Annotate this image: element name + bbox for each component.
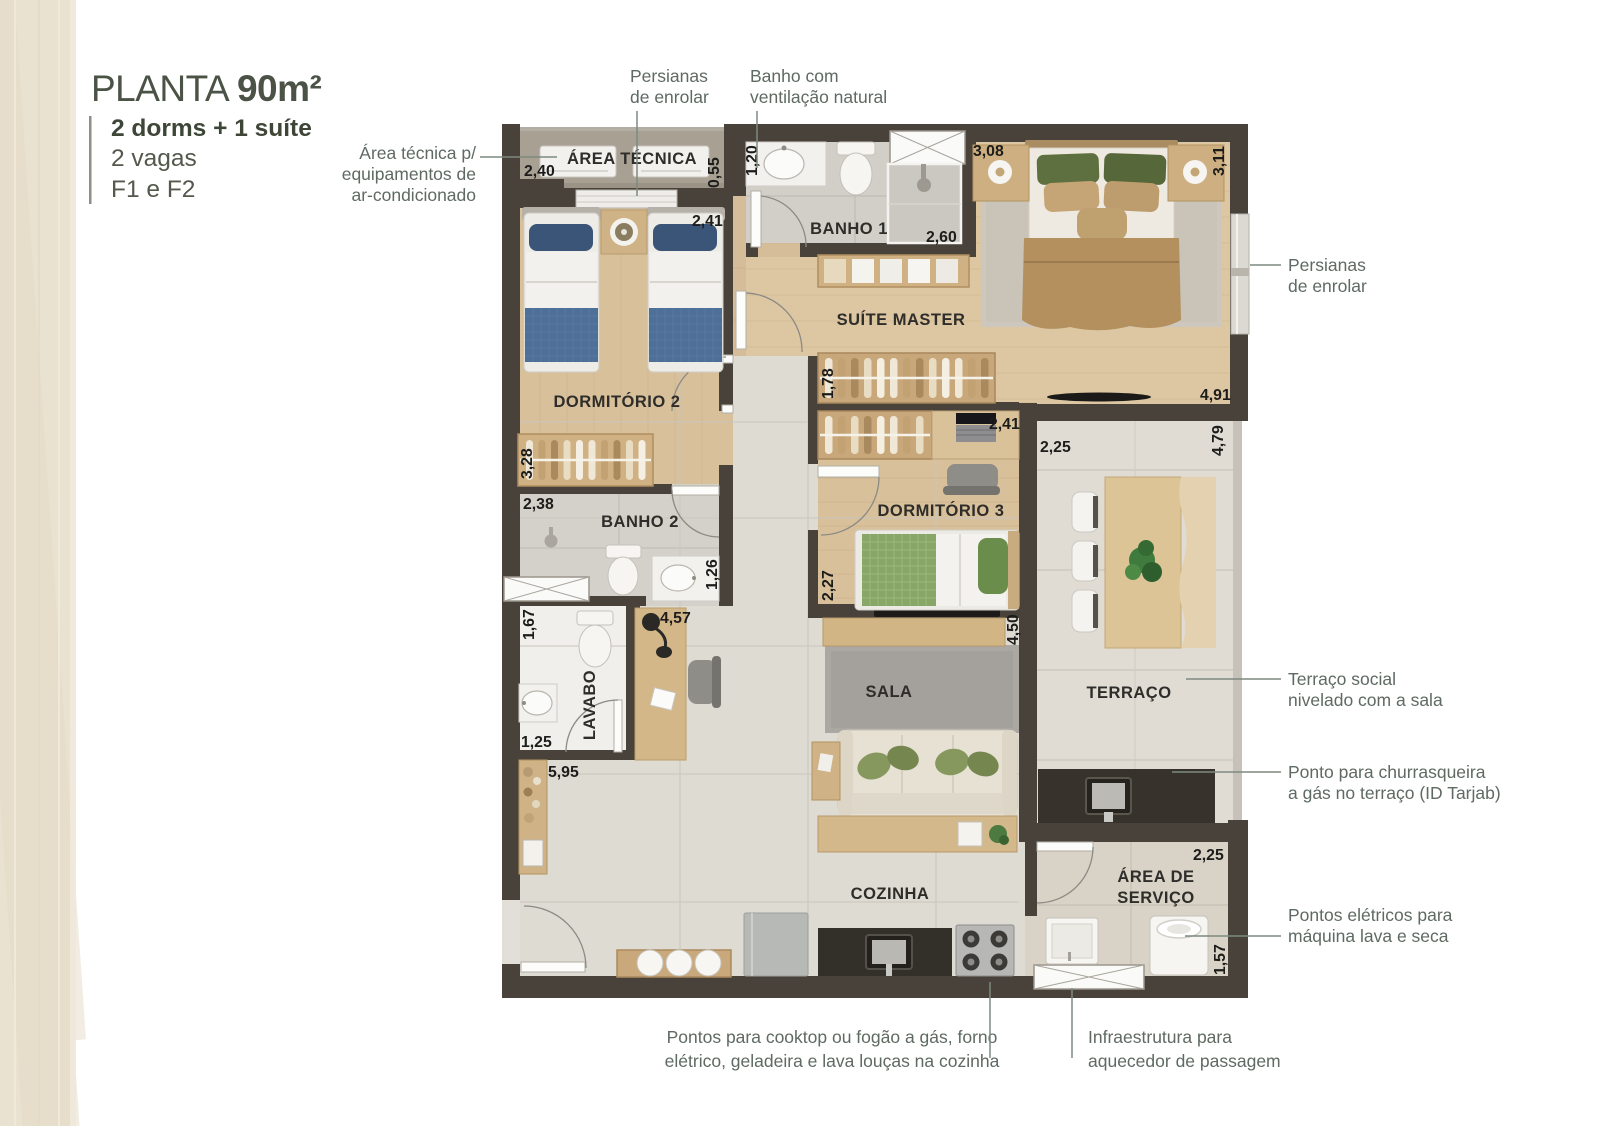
svg-text:PLANTA 90m²: PLANTA 90m² [91, 68, 321, 109]
svg-text:DORMITÓRIO 3: DORMITÓRIO 3 [877, 501, 1004, 520]
svg-text:aquecedor de passagem: aquecedor de passagem [1088, 1051, 1281, 1071]
svg-text:COZINHA: COZINHA [851, 885, 930, 903]
svg-text:3,11: 3,11 [1211, 146, 1228, 176]
svg-text:equipamentos de: equipamentos de [342, 164, 476, 184]
svg-text:Banho com: Banho com [750, 66, 839, 86]
svg-text:2,27: 2,27 [820, 570, 837, 601]
svg-text:1,57: 1,57 [1212, 944, 1229, 975]
svg-text:5,95: 5,95 [548, 764, 579, 781]
svg-text:ventilação natural: ventilação natural [750, 87, 887, 107]
svg-text:2,40: 2,40 [524, 163, 555, 180]
svg-text:1,25: 1,25 [521, 734, 552, 751]
svg-text:Persianas: Persianas [630, 66, 708, 86]
svg-text:nivelado com a sala: nivelado com a sala [1288, 690, 1443, 710]
svg-text:SERVIÇO: SERVIÇO [1117, 889, 1194, 907]
svg-text:TERRAÇO: TERRAÇO [1086, 684, 1171, 702]
svg-text:Infraestrutura para: Infraestrutura para [1088, 1027, 1232, 1047]
svg-text:LAVABO: LAVABO [581, 670, 599, 740]
svg-text:2 dorms + 1 suíte: 2 dorms + 1 suíte [111, 115, 312, 142]
svg-text:Pontos elétricos para: Pontos elétricos para [1288, 905, 1453, 925]
svg-text:F1 e F2: F1 e F2 [111, 176, 195, 203]
svg-text:de enrolar: de enrolar [1288, 276, 1367, 296]
svg-text:2,38: 2,38 [523, 496, 554, 513]
svg-text:2 vagas: 2 vagas [111, 145, 197, 172]
svg-text:Pontos para cooktop ou fogão a: Pontos para cooktop ou fogão a gás, forn… [667, 1027, 998, 1047]
svg-text:2,41: 2,41 [692, 213, 723, 230]
svg-text:de enrolar: de enrolar [630, 87, 709, 107]
svg-text:SALA: SALA [866, 683, 913, 701]
svg-text:a gás no terraço (ID Tarjab): a gás no terraço (ID Tarjab) [1288, 783, 1501, 803]
svg-text:máquina lava e seca: máquina lava e seca [1288, 926, 1449, 946]
svg-text:1,78: 1,78 [820, 368, 837, 399]
svg-text:ar-condicionado: ar-condicionado [351, 185, 476, 205]
svg-text:BANHO 1: BANHO 1 [810, 220, 888, 238]
svg-text:2,25: 2,25 [1193, 847, 1224, 864]
svg-text:1,20: 1,20 [744, 145, 761, 176]
svg-text:elétrico, geladeira e lava lou: elétrico, geladeira e lava louças na coz… [665, 1051, 1000, 1071]
svg-text:Ponto para churrasqueira: Ponto para churrasqueira [1288, 762, 1486, 782]
svg-text:4,91: 4,91 [1200, 387, 1231, 404]
svg-text:Área técnica p/: Área técnica p/ [359, 143, 476, 163]
svg-text:2,60: 2,60 [926, 229, 957, 246]
svg-text:4,50: 4,50 [1005, 614, 1022, 645]
svg-text:DORMITÓRIO 2: DORMITÓRIO 2 [553, 392, 680, 411]
svg-text:ÁREA DE: ÁREA DE [1117, 867, 1194, 886]
svg-text:SUÍTE MASTER: SUÍTE MASTER [837, 310, 966, 329]
svg-text:Persianas: Persianas [1288, 255, 1366, 275]
svg-text:Terraço social: Terraço social [1288, 669, 1396, 689]
svg-text:4,79: 4,79 [1210, 425, 1227, 456]
svg-text:4,57: 4,57 [660, 610, 691, 627]
svg-text:0,55: 0,55 [706, 157, 723, 188]
svg-text:3,28: 3,28 [519, 448, 536, 479]
svg-text:2,41: 2,41 [989, 416, 1020, 433]
svg-text:3,08: 3,08 [973, 143, 1004, 160]
svg-text:1,67: 1,67 [521, 609, 538, 640]
svg-text:ÁREA TÉCNICA: ÁREA TÉCNICA [567, 149, 697, 168]
svg-text:2,25: 2,25 [1040, 439, 1071, 456]
svg-text:1,26: 1,26 [704, 559, 721, 590]
svg-text:BANHO 2: BANHO 2 [601, 513, 679, 531]
